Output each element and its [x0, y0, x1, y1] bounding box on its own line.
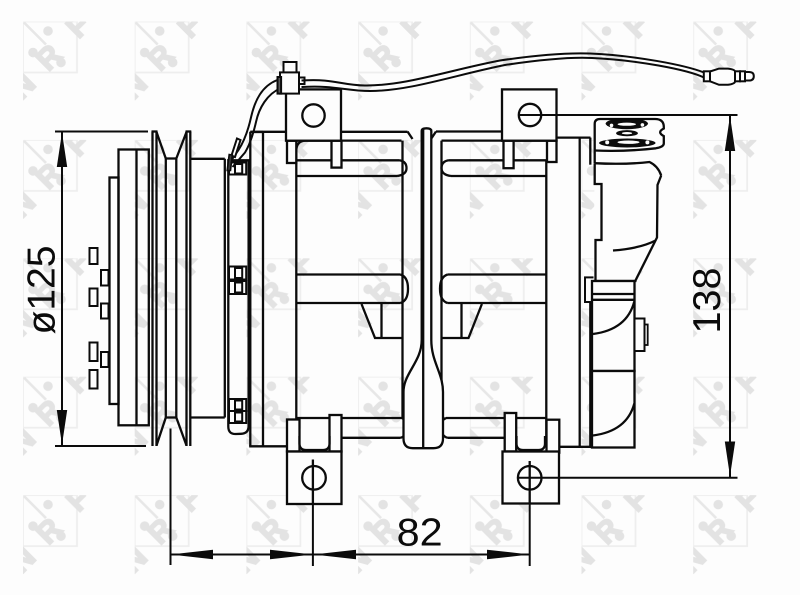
svg-text:ø125: ø125 — [21, 246, 64, 335]
svg-text:82: 82 — [397, 512, 443, 555]
svg-text:138: 138 — [686, 268, 729, 334]
